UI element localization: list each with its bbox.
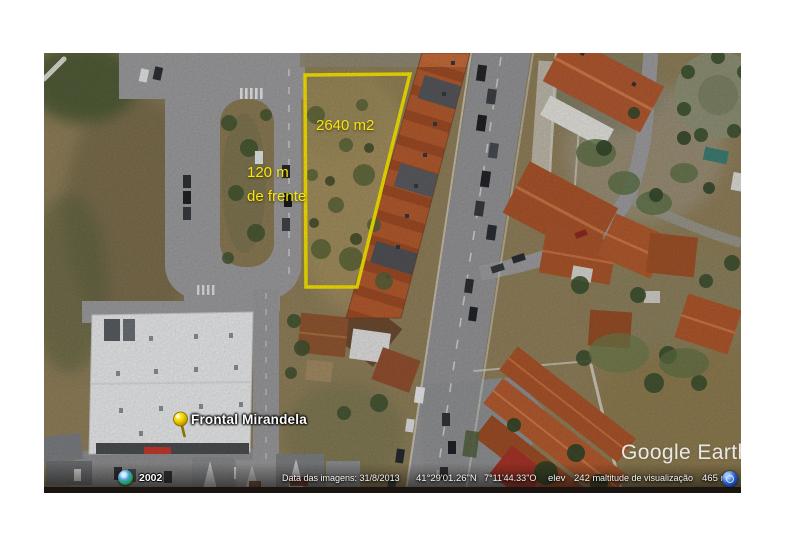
- image-grain: [44, 53, 741, 493]
- aerial-imagery: [44, 53, 741, 493]
- frontage-line-1: 120 m: [247, 161, 306, 185]
- view-altitude-label: altitude de visualização: [600, 473, 693, 483]
- imagery-date: Data das imagens: 31/8/2013: [282, 473, 400, 483]
- parcel-frontage-label: 120 m de frente: [247, 161, 306, 209]
- screenshot-frame: 2640 m2 120 m de frente Frontal Mirandel…: [0, 0, 800, 554]
- historical-imagery-globe-icon: [118, 470, 133, 485]
- elevation-label: elev: [548, 473, 565, 484]
- longitude-readout: 7°11'44.33"O: [484, 473, 536, 483]
- image-bottom-edge: [44, 487, 741, 493]
- historical-imagery-chip[interactable]: 2002: [118, 470, 162, 485]
- satellite-map[interactable]: 2640 m2 120 m de frente Frontal Mirandel…: [44, 53, 741, 493]
- elevation-value: 242 m: [574, 473, 600, 484]
- parcel-area-label: 2640 m2: [316, 117, 374, 134]
- latitude-readout: 41°29'01.26"N: [416, 473, 477, 484]
- eye-altitude-icon: [722, 471, 738, 487]
- pushpin-icon[interactable]: [172, 411, 190, 438]
- placemark-label[interactable]: Frontal Mirandela: [191, 412, 307, 427]
- historical-imagery-year: 2002: [139, 472, 162, 484]
- frontage-line-2: de frente: [247, 185, 306, 209]
- google-earth-watermark: Google Earth: [621, 441, 741, 465]
